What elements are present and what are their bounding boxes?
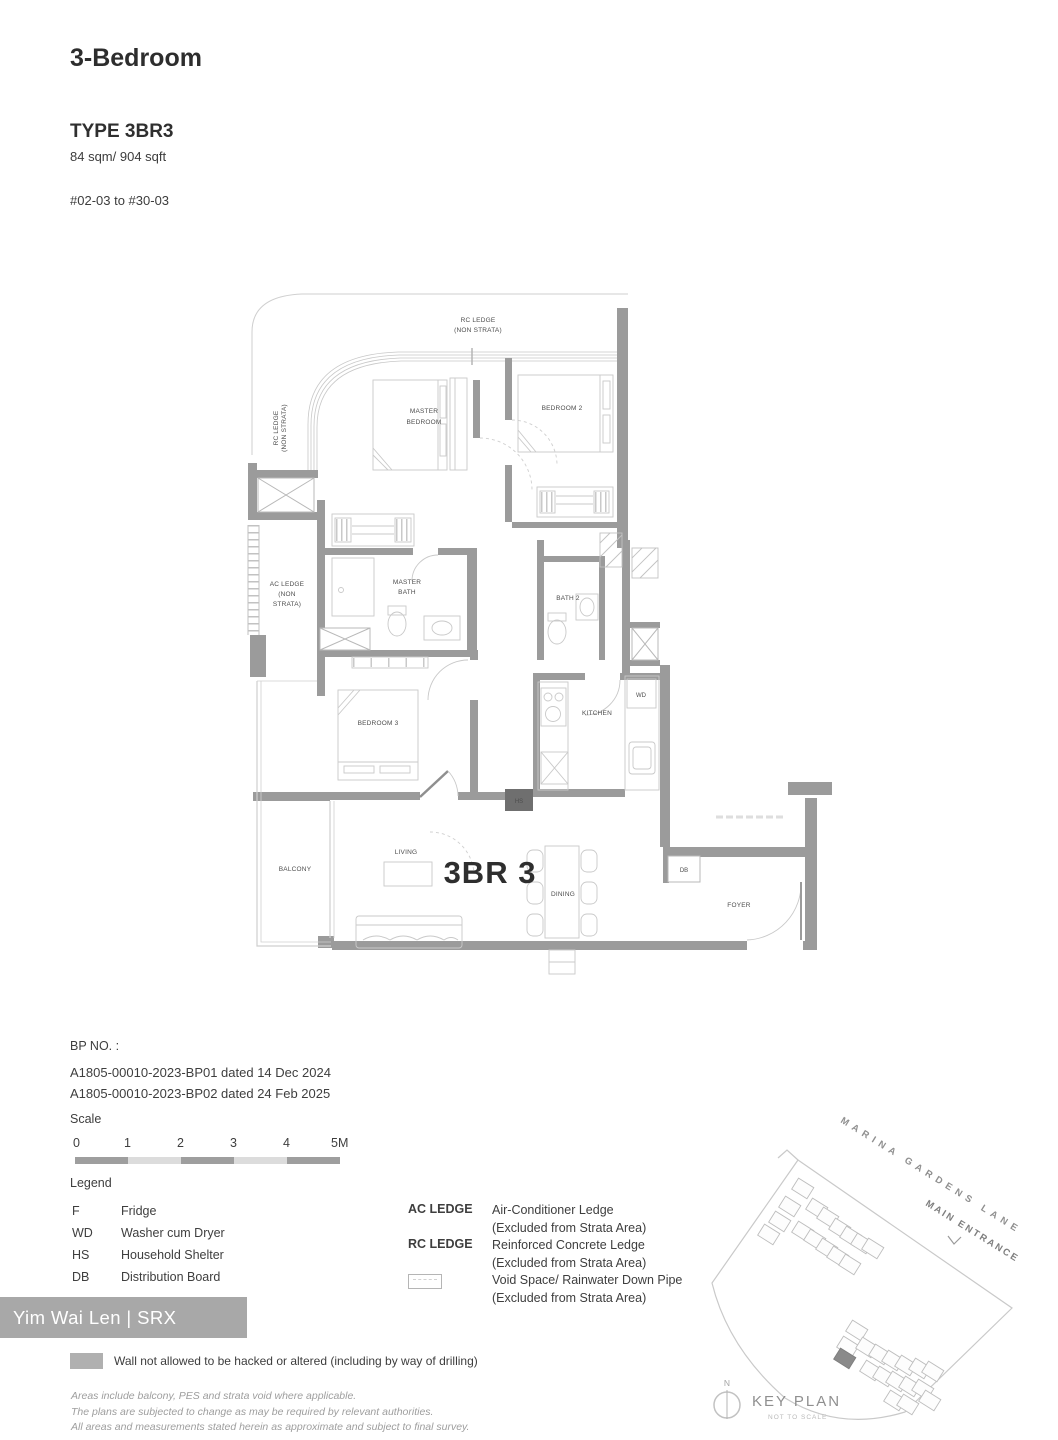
- rc-ledge-left-label: RC LEDGE (NON STRATA): [273, 404, 288, 452]
- svg-text:MARINA GARDENS LANE: MARINA GARDENS LANE: [838, 1115, 1023, 1236]
- scale-tick: 1: [124, 1136, 131, 1150]
- balcony-outline: [257, 681, 334, 946]
- svg-text:RC LEDGE: RC LEDGE: [273, 410, 280, 445]
- watermark-banner: Yim Wai Len | SRX PROPERTY: [0, 1297, 247, 1338]
- svg-text:STRATA): STRATA): [273, 601, 301, 608]
- ledge-legend-block: AC LEDGE Air-Conditioner Ledge (Excluded…: [408, 1202, 682, 1307]
- svg-text:(NON STRATA): (NON STRATA): [281, 404, 288, 452]
- legend-abbr: HS: [72, 1248, 119, 1268]
- north-indicator: N: [714, 1378, 740, 1419]
- bp-line: A1805-00010-2023-BP01 dated 14 Dec 2024: [70, 1062, 331, 1083]
- ledge-desc: Void Space/ Rainwater Down Pipe: [492, 1272, 682, 1290]
- legend-desc: Household Shelter: [121, 1248, 225, 1268]
- disclaimer-line: The plans are subjected to change as may…: [71, 1405, 469, 1421]
- void-space-symbol: [408, 1274, 442, 1289]
- coffee-table: [384, 862, 432, 886]
- legend-desc: Fridge: [121, 1204, 225, 1224]
- bedroom2-label: BEDROOM 2: [542, 405, 583, 412]
- unit-stack-label: #02-03 to #30-03: [70, 193, 169, 208]
- bp-heading: BP NO. :: [70, 1039, 331, 1053]
- keyplan-subtitle: NOT TO SCALE: [768, 1414, 827, 1421]
- unit-type-label: TYPE 3BR3: [70, 121, 173, 143]
- ac-ledge-grille: [248, 525, 259, 635]
- bedroom2-wardrobe: [537, 487, 613, 517]
- kitchen-label: KITCHEN: [582, 710, 612, 717]
- svg-text:BATH: BATH: [398, 589, 416, 596]
- keyplan-title: KEY PLAN: [752, 1393, 841, 1410]
- scale-tick: 2: [177, 1136, 184, 1150]
- keyplan-units-upper: [758, 1178, 884, 1275]
- legend-title: Legend: [70, 1176, 227, 1190]
- ledge-desc: Air-Conditioner Ledge: [492, 1202, 646, 1220]
- bedroom3-label: BEDROOM 3: [358, 720, 399, 727]
- foyer-label: FOYER: [727, 902, 750, 909]
- wall-note-row: Wall not allowed to be hacked or altered…: [70, 1353, 478, 1369]
- ledge-note: (Excluded from Strata Area): [492, 1255, 646, 1273]
- ledge-term: AC LEDGE: [408, 1202, 492, 1237]
- rc-ledge-top-label2: (NON STRATA): [454, 327, 502, 334]
- dining-label: DINING: [551, 891, 575, 898]
- street-label: MARINA GARDENS LANE: [838, 1115, 1023, 1236]
- bedroom3-bed: [338, 657, 428, 780]
- legend-abbr: DB: [72, 1270, 119, 1290]
- scale-label: Scale: [70, 1112, 101, 1126]
- foyer-door-gap: [747, 939, 803, 951]
- floorplan-page: 3-Bedroom TYPE 3BR3 84 sqm/ 904 sqft #02…: [0, 0, 1058, 1440]
- page-title: 3-Bedroom: [70, 44, 202, 73]
- main-entrance-label: MAIN ENTRANCE: [923, 1198, 1021, 1265]
- balcony-label: BALCONY: [279, 866, 312, 873]
- svg-text:MAIN ENTRANCE: MAIN ENTRANCE: [923, 1198, 1021, 1265]
- legend-abbr: F: [72, 1204, 119, 1224]
- disclaimer-line: Areas include balcony, PES and strata vo…: [71, 1389, 469, 1405]
- bath2-label: BATH 2: [556, 595, 580, 602]
- key-plan: MARINA GARDENS LANE MAIN ENTRANCE: [690, 1090, 1058, 1440]
- rc-ledge-top-label: RC LEDGE: [461, 317, 496, 324]
- living-label: LIVING: [395, 849, 418, 856]
- legend-abbr: WD: [72, 1226, 119, 1246]
- ac-ledge-label: AC LEDGE: [270, 581, 305, 588]
- master-bedroom-label: MASTER: [410, 408, 438, 415]
- scale-bar-segments: [75, 1157, 340, 1164]
- bedroom2-bed: [518, 375, 613, 452]
- ledge-note: (Excluded from Strata Area): [492, 1220, 646, 1238]
- bp-number-block: BP NO. : A1805-00010-2023-BP01 dated 14 …: [70, 1039, 331, 1104]
- legend-desc: Distribution Board: [121, 1270, 225, 1290]
- dining-bay: [549, 950, 575, 974]
- ledge-term: RC LEDGE: [408, 1237, 492, 1272]
- legend-block: Legend F Fridge WD Washer cum Dryer HS H…: [70, 1176, 227, 1292]
- north-label: N: [724, 1378, 730, 1388]
- disclaimer-line: All areas and measurements stated herein…: [71, 1420, 469, 1436]
- wall-swatch: [70, 1353, 103, 1369]
- svg-text:BEDROOM: BEDROOM: [407, 419, 442, 426]
- scale-tick: 5M: [331, 1136, 348, 1150]
- wall-note-text: Wall not allowed to be hacked or altered…: [114, 1354, 478, 1368]
- bp-line: A1805-00010-2023-BP02 dated 24 Feb 2025: [70, 1083, 331, 1104]
- hs-label: HS: [515, 799, 523, 805]
- scale-tick: 4: [283, 1136, 290, 1150]
- unit-name-big: 3BR 3: [444, 855, 537, 890]
- master-bath-label: MASTER: [393, 579, 421, 586]
- scale-bar: 0 1 2 3 4 5M: [73, 1136, 343, 1170]
- keyplan-units-lower: [834, 1320, 944, 1415]
- unit-area-label: 84 sqm/ 904 sqft: [70, 149, 166, 164]
- master-wardrobe: [332, 514, 414, 546]
- ledge-note: (Excluded from Strata Area): [492, 1290, 682, 1308]
- wd-label: WD: [636, 693, 647, 699]
- entrance-arrow: [948, 1236, 961, 1244]
- site-boundary: [712, 1150, 1012, 1419]
- scale-tick: 3: [230, 1136, 237, 1150]
- legend-desc: Washer cum Dryer: [121, 1226, 225, 1246]
- db-label: DB: [680, 868, 688, 874]
- ledge-desc: Reinforced Concrete Ledge: [492, 1237, 646, 1255]
- floorplan-drawing: RC LEDGE (NON STRATA) RC LEDGE (NON STRA…: [240, 280, 840, 995]
- scale-tick: 0: [73, 1136, 80, 1150]
- svg-text:(NON: (NON: [278, 591, 296, 598]
- disclaimer-block: Areas include balcony, PES and strata vo…: [71, 1389, 469, 1436]
